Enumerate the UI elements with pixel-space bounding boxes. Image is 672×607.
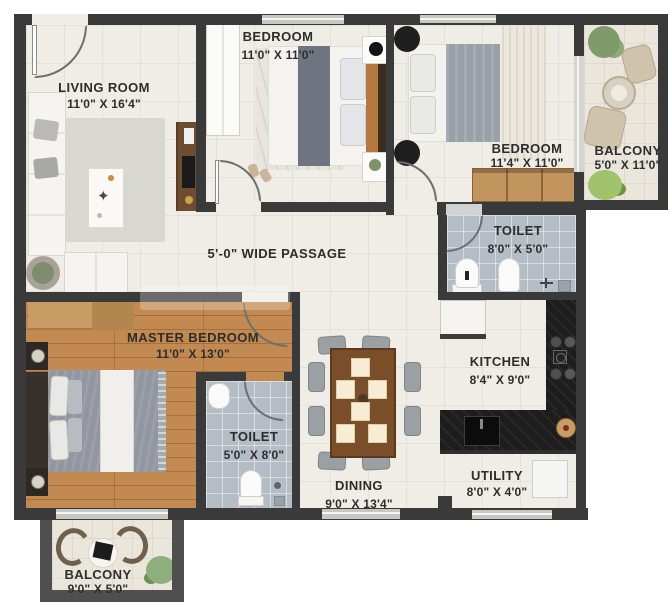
dining-chair xyxy=(308,362,325,392)
bedroom2-blanket xyxy=(446,44,500,142)
label-bedroom1: BEDROOM 11'0" X 11'0" xyxy=(241,27,314,65)
serving-plate xyxy=(556,418,576,438)
remote-items xyxy=(184,128,194,144)
lamp-icon xyxy=(369,42,383,56)
bedroom2-balcony-slider xyxy=(574,56,584,172)
entrance-door-leaf xyxy=(32,25,37,75)
master-nightstand xyxy=(26,342,48,370)
coffee-table: ✦ xyxy=(88,168,124,228)
room-dims: 11'4" X 11'0" xyxy=(490,156,563,171)
room-name: BALCONY xyxy=(594,144,661,158)
room-dims: 9'0" X 13'4" xyxy=(325,495,393,513)
bedroom1-pillow xyxy=(340,58,366,100)
label-utility: UTILITY 8'0" X 4'0" xyxy=(467,467,528,501)
label-master-bedroom: MASTER BEDROOM 11'0" X 13'0" xyxy=(127,329,259,363)
room-name: BEDROOM xyxy=(490,141,563,156)
wall-balcony-tr-right xyxy=(658,14,668,210)
toilet2-wc-icon xyxy=(240,470,262,498)
master-balcony-slider xyxy=(56,509,168,519)
washing-machine xyxy=(532,460,568,498)
passage-text: 5'-0" WIDE PASSAGE xyxy=(207,245,346,262)
floor-plan: ✦ xyxy=(0,0,672,607)
bedroom2-planter xyxy=(394,26,420,52)
bedroom1-wardrobe xyxy=(206,24,240,136)
floor-drain xyxy=(274,496,285,506)
console-knob xyxy=(185,196,193,204)
sofa-loveseat xyxy=(64,252,128,294)
label-living-room: LIVING ROOM 11'0" X 16'4" xyxy=(58,80,150,112)
fridge-edge xyxy=(440,334,486,339)
decor-dot xyxy=(97,213,102,218)
bedroom1-throw xyxy=(366,62,378,154)
toilet1-basin-icon xyxy=(498,258,520,292)
floor-drain xyxy=(558,280,571,292)
room-dims: 11'0" X 13'0" xyxy=(127,346,259,363)
label-balcony-bl: BALCONY 9'0" X 5'0" xyxy=(64,568,131,596)
faucet-icon xyxy=(545,278,547,288)
room-name: LIVING ROOM xyxy=(58,80,150,96)
room-name: KITCHEN xyxy=(470,353,531,371)
tv-console xyxy=(176,122,196,211)
sofa-pillow xyxy=(33,118,60,141)
room-name: MASTER BEDROOM xyxy=(127,329,259,346)
plate-food xyxy=(563,425,569,431)
label-balcony-tr: BALCONY 5'0" X 11'0" xyxy=(594,144,661,172)
entrance-door-gap xyxy=(32,14,88,25)
wall-utility-stub xyxy=(438,496,452,520)
room-name: TOILET xyxy=(488,222,549,240)
stove-burner-icon xyxy=(556,353,566,363)
star-decor-icon: ✦ xyxy=(97,187,110,205)
room-name: TOILET xyxy=(224,428,285,446)
place-setting xyxy=(336,380,355,399)
room-dims: 5'0" X 11'0" xyxy=(594,158,661,172)
wall-bedroom1-bedroom2 xyxy=(386,14,394,212)
stove-burner-icon xyxy=(564,336,576,348)
tv-icon xyxy=(182,156,195,188)
tap-icon xyxy=(480,419,483,429)
living-plant-icon xyxy=(32,262,54,284)
place-setting xyxy=(368,380,387,399)
dresser-dark-section xyxy=(92,302,134,330)
room-dims: 8'0" X 5'0" xyxy=(488,240,549,258)
room-dims: 8'4" X 9'0" xyxy=(470,371,531,389)
balcony-tr-plant-icon xyxy=(588,26,620,58)
bedroom2-wardrobe xyxy=(472,168,576,202)
wall-balcony-tr-bottom xyxy=(576,200,668,210)
stove-burner-icon xyxy=(550,368,562,380)
wall-master-dining xyxy=(292,292,300,520)
master-dresser xyxy=(28,302,134,330)
bed-fringe xyxy=(158,372,166,470)
master-nightstand xyxy=(26,468,48,496)
toilet2-door-gap xyxy=(246,372,284,381)
balcony-tray xyxy=(93,541,114,560)
sofa-pillow xyxy=(33,157,59,179)
master-headboard xyxy=(26,372,48,468)
toilet2-basin-icon xyxy=(208,383,230,409)
bedroom1-window xyxy=(262,15,344,24)
room-dims: 11'0" X 11'0" xyxy=(241,46,314,65)
wall-toilet1-bottom xyxy=(438,292,584,300)
wall-living-bedroom1 xyxy=(196,14,206,212)
bedroom1-door-gap xyxy=(216,202,261,212)
wall-right-mid xyxy=(576,210,586,520)
wall-balcony-bl-left xyxy=(40,520,52,600)
stove-grate-icon xyxy=(553,350,567,364)
room-dims: 11'0" X 16'4" xyxy=(58,96,150,112)
place-setting xyxy=(351,358,370,377)
toilet2-wc-tank xyxy=(238,496,264,506)
dining-chair xyxy=(404,406,421,436)
label-toilet2: TOILET 5'0" X 8'0" xyxy=(224,428,285,464)
lamp-icon xyxy=(31,349,45,363)
master-pillow xyxy=(49,376,69,417)
bedroom2-door-gap xyxy=(394,202,437,215)
room-dims: 9'0" X 5'0" xyxy=(64,582,131,596)
stove-burner-icon xyxy=(550,336,562,348)
bedroom2-pillow xyxy=(410,96,436,134)
room-name: BEDROOM xyxy=(241,27,314,46)
papasan-cushion xyxy=(611,85,627,101)
lamp-icon xyxy=(31,475,45,489)
place-setting xyxy=(368,424,387,443)
plant-icon xyxy=(369,159,381,171)
decor-dot xyxy=(108,175,114,181)
dining-chair xyxy=(404,362,421,392)
kitchen-sink xyxy=(464,416,500,446)
bedroom2-window xyxy=(420,15,496,23)
toilet1-wc-icon xyxy=(455,258,479,288)
counter-edge xyxy=(440,450,576,454)
master-pillow-gray xyxy=(68,418,82,452)
label-bedroom2: BEDROOM 11'4" X 11'0" xyxy=(490,141,563,171)
label-toilet1: TOILET 8'0" X 5'0" xyxy=(488,222,549,258)
wall-left xyxy=(14,14,26,520)
toilet1-door-gap xyxy=(446,204,482,215)
place-setting xyxy=(336,424,355,443)
room-dims: 8'0" X 4'0" xyxy=(467,484,528,501)
room-dims: 5'0" X 8'0" xyxy=(224,446,285,464)
wc-flush-mark xyxy=(465,271,469,280)
bedroom1-pillow xyxy=(340,104,366,146)
place-setting xyxy=(351,402,370,421)
bedroom2-pillow xyxy=(410,54,436,92)
balcony-tr-plant-icon xyxy=(588,170,622,200)
fridge xyxy=(440,300,486,338)
stove-burner-icon xyxy=(564,368,576,380)
master-pillow-gray xyxy=(68,380,82,414)
wall-master-toilet2 xyxy=(196,372,206,520)
master-bed-runner xyxy=(100,370,134,472)
bedroom1-door-leaf xyxy=(215,160,219,204)
dining-chair xyxy=(308,406,325,436)
shower-icon xyxy=(274,482,281,489)
bedroom2-rug xyxy=(502,26,546,160)
watermark xyxy=(140,286,290,310)
room-name: BALCONY xyxy=(64,568,131,582)
label-kitchen: KITCHEN 8'4" X 9'0" xyxy=(470,353,531,389)
utility-window xyxy=(472,510,552,519)
master-pillow xyxy=(49,420,69,461)
label-passage: 5'-0" WIDE PASSAGE xyxy=(207,245,346,262)
room-name: DINING xyxy=(325,477,393,495)
label-dining: DINING 9'0" X 13'4" xyxy=(325,477,393,513)
room-name: UTILITY xyxy=(467,467,528,484)
wall-balcony-bl-right xyxy=(172,520,184,602)
